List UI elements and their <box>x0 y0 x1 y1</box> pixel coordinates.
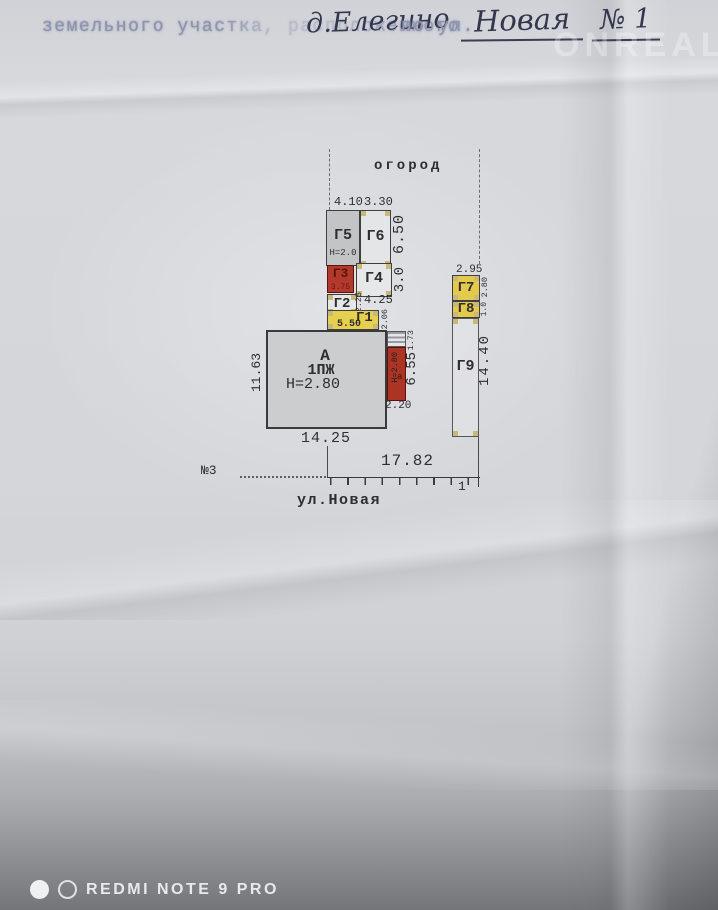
dim-2.80: 2.80 <box>480 277 490 297</box>
paper-crease <box>0 700 718 790</box>
lot-line-right <box>478 437 479 477</box>
photographed-plan-document: земельного участка, расположенного д.Еле… <box>0 0 718 910</box>
boundary-dashed-left <box>329 149 330 210</box>
building-g6-label: Г6 <box>360 228 391 245</box>
building-g3-size: 3.75 <box>327 283 354 292</box>
dim-1.73: 1.73 <box>406 330 416 350</box>
dim-3.30: 3.30 <box>364 195 393 209</box>
building-g5-label: Г5 <box>326 227 360 244</box>
dim-11.63: 11.63 <box>249 353 264 392</box>
brand-dot-outline-icon <box>58 880 77 899</box>
dim-6.55: 6.55 <box>404 352 420 386</box>
neighbor-dotted-line <box>240 476 326 478</box>
lot-line-left <box>327 446 328 477</box>
camera-watermark: REDMI NOTE 9 PRO <box>30 880 279 899</box>
street-end-tick <box>478 477 479 487</box>
dim-6.50: 6.50 <box>391 214 408 254</box>
annex-porch-hatched <box>387 331 406 347</box>
building-g3-label: Г3 <box>327 266 354 281</box>
building-g9 <box>452 318 479 437</box>
dim-4.25: 4.25 <box>364 293 393 307</box>
building-g7-label: Г7 <box>452 280 480 296</box>
dim-5.50: 5.50 <box>337 319 361 330</box>
dim-1.0: 1.0 <box>480 302 489 316</box>
site-watermark: ONREALT <box>553 26 718 65</box>
boundary-dashed-right <box>479 149 480 264</box>
dim-2.20: 2.20 <box>385 400 411 412</box>
garden-label: огород <box>374 158 442 174</box>
dim-4.10: 4.10 <box>334 195 363 209</box>
header-stamped-street-label: по ул. <box>401 17 475 37</box>
dim-17.82: 17.82 <box>381 452 434 470</box>
paper-crease <box>0 500 718 620</box>
dim-3.0: 3.0 <box>392 267 408 292</box>
building-g8-label: Г8 <box>452 301 480 317</box>
dim-14.25: 14.25 <box>301 430 351 447</box>
annex-letter: а <box>397 372 402 382</box>
camera-brand-text: REDMI NOTE 9 PRO <box>86 881 279 899</box>
building-g5-height: Н=2.0 <box>326 248 360 258</box>
building-g9-label: Г9 <box>452 358 479 375</box>
street-corner-mark: 1 <box>458 479 466 494</box>
brand-dot-filled-icon <box>30 880 49 899</box>
dim-2.06: 2.06 <box>380 309 390 329</box>
main-house-height: Н=2.80 <box>254 376 372 393</box>
paper-crease <box>560 0 670 910</box>
building-g4-label: Г4 <box>356 270 392 287</box>
street-name: ул.Новая <box>297 492 381 509</box>
dim-14.40: 14.40 <box>477 334 493 386</box>
neighbor-label: №3 <box>201 463 217 478</box>
